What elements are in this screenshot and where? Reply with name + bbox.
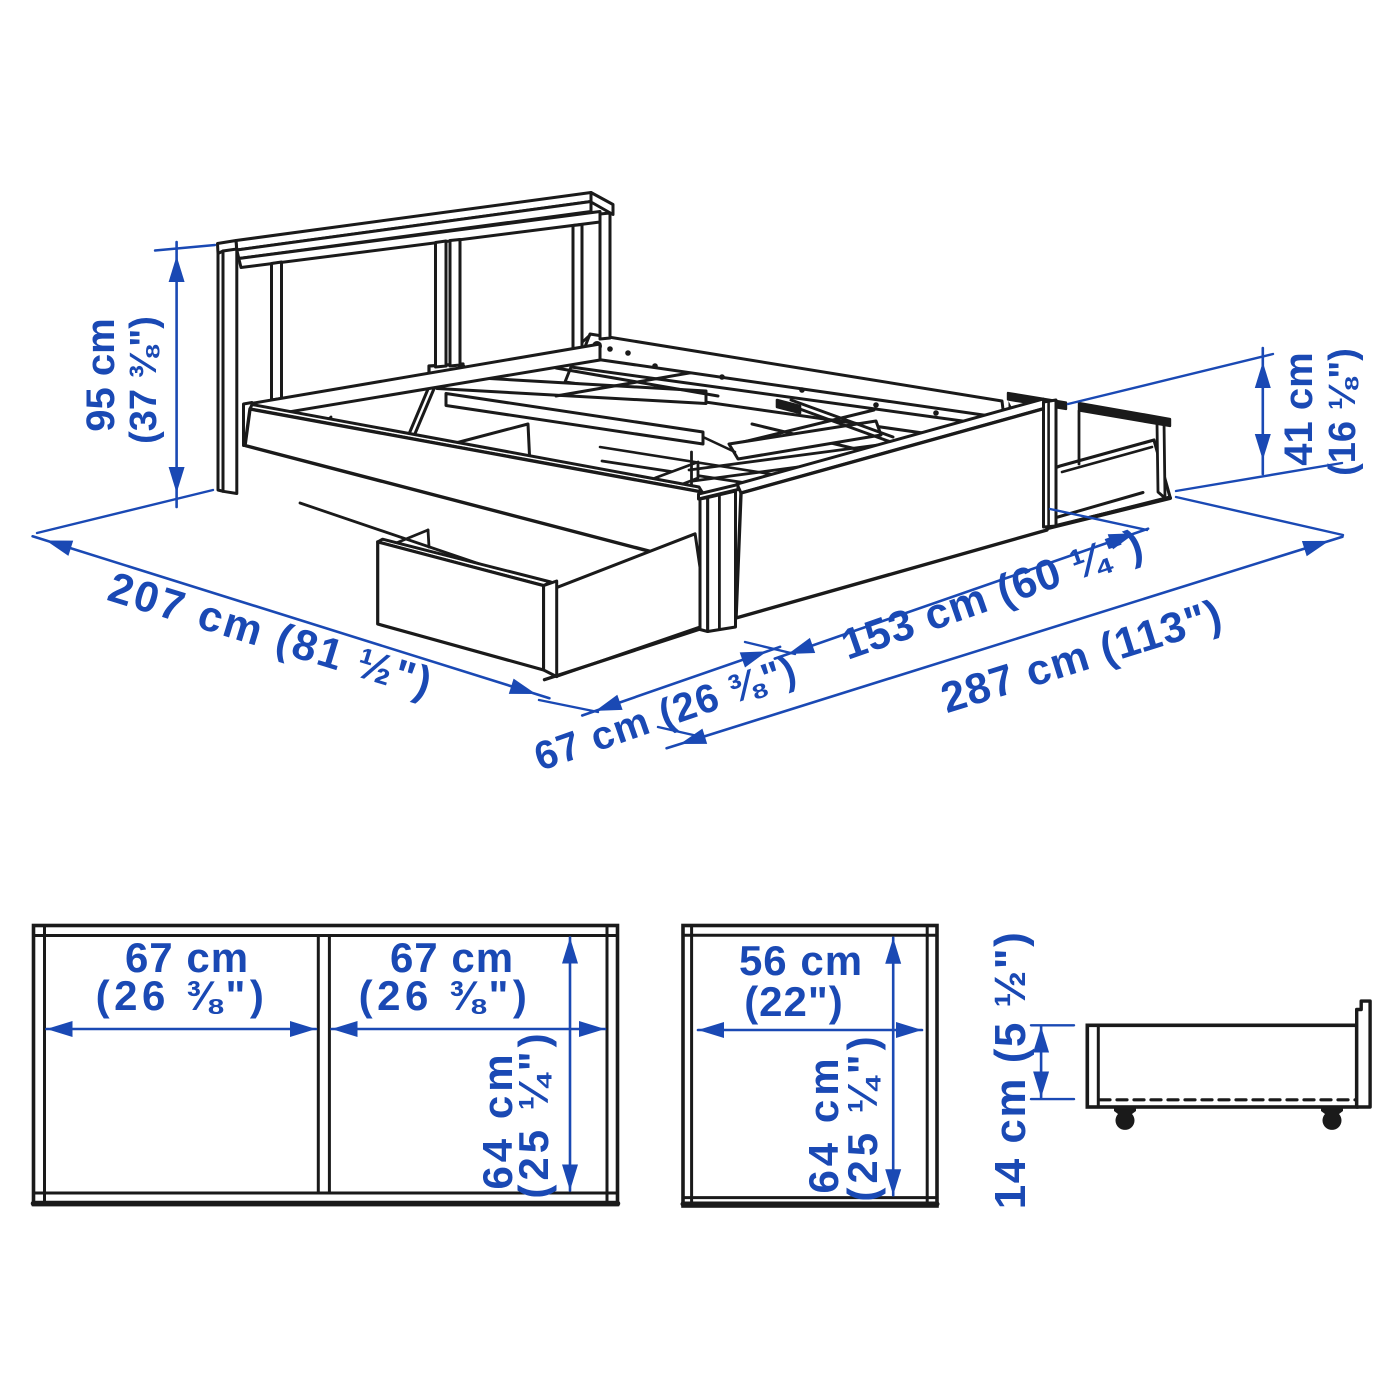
svg-text:14 cm (5 ½"): 14 cm (5 ½") bbox=[986, 931, 1035, 1210]
svg-text:(26 ⅜"): (26 ⅜") bbox=[96, 972, 269, 1019]
svg-text:(26 ⅜"): (26 ⅜") bbox=[359, 972, 532, 1019]
svg-text:(16 ⅛"): (16 ⅛") bbox=[1322, 348, 1364, 476]
svg-text:(37 ⅜"): (37 ⅜") bbox=[123, 316, 165, 444]
svg-text:(25 ¼"): (25 ¼") bbox=[510, 1029, 557, 1198]
svg-text:(25 ¼"): (25 ¼") bbox=[839, 1032, 886, 1201]
svg-text:95 cm: 95 cm bbox=[79, 318, 123, 431]
svg-text:56 cm: 56 cm bbox=[739, 937, 863, 984]
svg-text:41 cm: 41 cm bbox=[1277, 352, 1321, 465]
svg-text:(22"): (22") bbox=[744, 978, 844, 1025]
